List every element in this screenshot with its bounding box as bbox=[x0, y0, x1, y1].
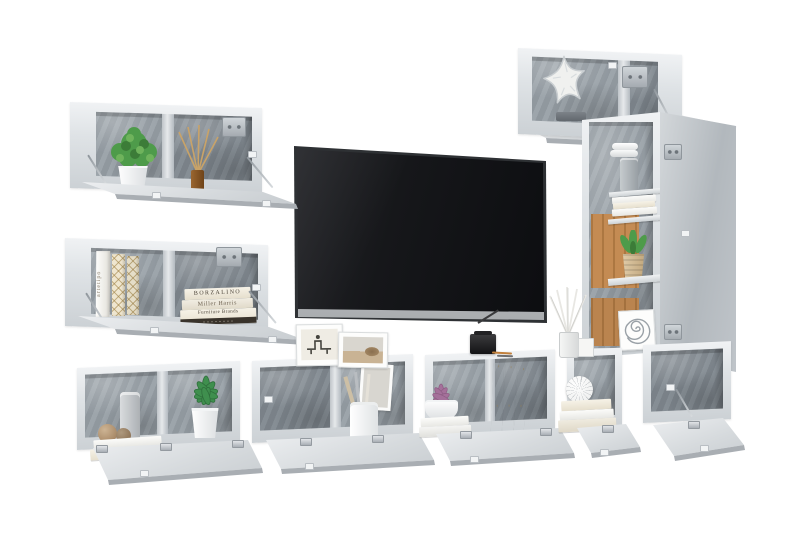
towel-roll bbox=[610, 150, 638, 157]
door-bracket bbox=[96, 445, 108, 453]
door-bracket bbox=[300, 438, 312, 446]
beach-photo bbox=[343, 337, 383, 364]
drop-door-open bbox=[432, 425, 575, 473]
grey-jar bbox=[620, 158, 638, 191]
drop-door-open bbox=[260, 431, 435, 481]
door-clip bbox=[152, 192, 161, 199]
door-clip bbox=[150, 327, 159, 334]
door-bracket bbox=[372, 435, 384, 443]
shelf-clip bbox=[666, 384, 675, 391]
door-clip bbox=[305, 463, 314, 470]
door-bracket bbox=[602, 425, 614, 433]
door-clip bbox=[470, 456, 479, 463]
cabinet-open-door bbox=[659, 110, 737, 374]
inner-shadow bbox=[651, 349, 723, 356]
white-reed-diffuser-sticks bbox=[548, 286, 590, 338]
patterned-book-spine bbox=[112, 254, 125, 316]
door-clip bbox=[700, 445, 709, 452]
compartment-divider bbox=[163, 250, 175, 316]
photo-detail bbox=[365, 347, 379, 356]
hinge-hardware bbox=[622, 66, 648, 88]
white-diffuser-bottle bbox=[559, 332, 579, 358]
starfish-stand bbox=[556, 112, 586, 121]
shelf-clip bbox=[264, 396, 273, 403]
door-clip bbox=[268, 336, 277, 343]
door-bracket bbox=[540, 428, 552, 436]
side-wall-shade bbox=[714, 349, 723, 409]
inner-shadow bbox=[85, 372, 157, 379]
shelf-clip bbox=[248, 151, 257, 158]
door-bracket bbox=[460, 431, 472, 439]
door-bracket bbox=[688, 421, 700, 429]
potted-plant-foliage bbox=[106, 126, 162, 172]
shelf-clip bbox=[252, 284, 261, 291]
picture-frame-beach bbox=[338, 332, 389, 369]
towel-roll bbox=[612, 143, 638, 150]
diffuser-box bbox=[578, 338, 594, 357]
compartment-divider bbox=[157, 371, 168, 434]
hinge-hardware bbox=[216, 247, 242, 267]
frame-artwork bbox=[301, 329, 339, 361]
flat-screen-tv bbox=[289, 142, 549, 326]
reed-diffuser-sticks bbox=[176, 124, 220, 176]
door-clip bbox=[600, 449, 609, 456]
white-square-pot bbox=[191, 408, 219, 438]
compartment-back-panel bbox=[651, 349, 723, 412]
door-hinge bbox=[664, 144, 682, 160]
door-clip bbox=[262, 200, 271, 207]
book-spine-upright: artetipo bbox=[96, 251, 111, 317]
door-clip bbox=[681, 230, 690, 237]
hinge-hardware bbox=[222, 117, 246, 137]
door-hinge bbox=[664, 324, 682, 340]
compartment-divider bbox=[330, 364, 341, 427]
side-wall-shade bbox=[538, 357, 547, 419]
product-photo-scene: artetipo BORZALINO Miller Harris Furnitu… bbox=[0, 0, 800, 533]
spiral-artwork bbox=[619, 310, 653, 348]
door-clip bbox=[140, 470, 149, 477]
inner-shadow bbox=[96, 112, 162, 118]
picture-frame-art bbox=[296, 324, 344, 367]
shelf-clip bbox=[608, 62, 617, 69]
patterned-book-spine bbox=[127, 256, 139, 315]
book-spine-text: artetipo bbox=[96, 251, 111, 317]
lantern-lid bbox=[474, 331, 492, 335]
inner-shadow bbox=[433, 359, 485, 365]
tv-screen-reflection bbox=[289, 142, 549, 326]
compartment-divider bbox=[162, 114, 174, 178]
starfish bbox=[538, 51, 600, 120]
side-wall-shade bbox=[396, 361, 405, 424]
door-bracket bbox=[232, 440, 244, 448]
door-bracket bbox=[160, 443, 172, 451]
